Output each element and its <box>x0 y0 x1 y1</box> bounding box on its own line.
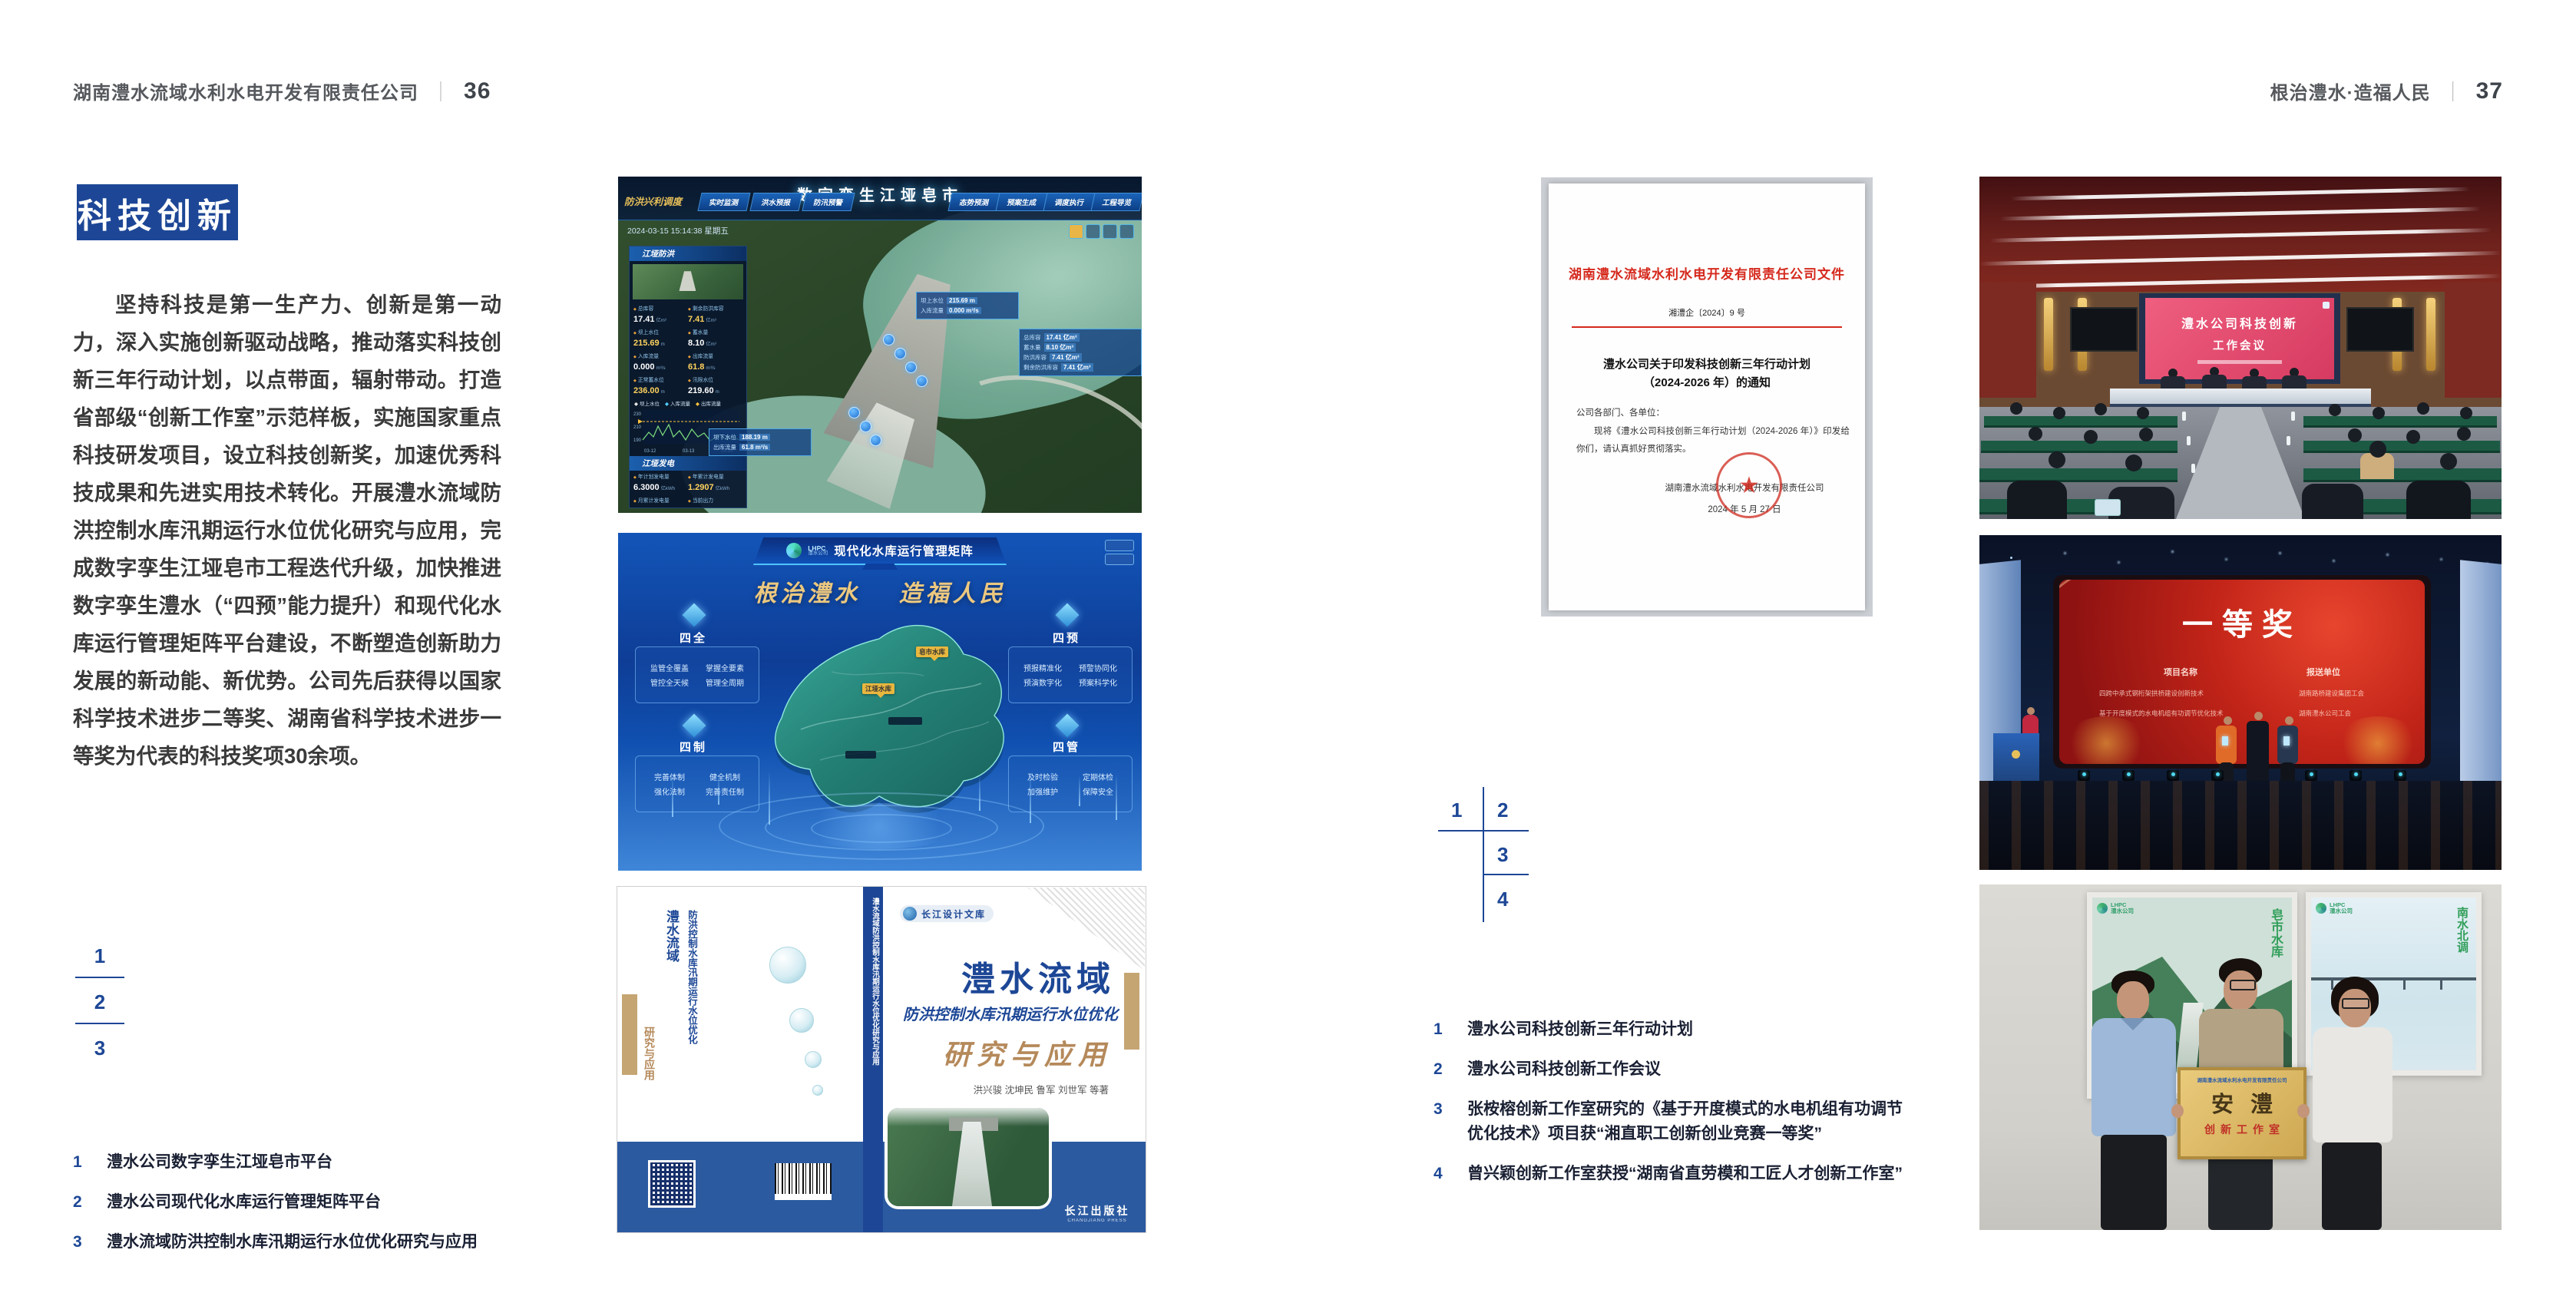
moving-light <box>2167 770 2179 781</box>
panel-item: 预案科学化 <box>1073 676 1123 688</box>
publisher-name-en: CHANGJIANG PRESS <box>1047 1218 1146 1223</box>
award-title: 一等奖 <box>2059 600 2425 644</box>
figure-grid-hline <box>1483 874 1529 875</box>
stat-unit: 亿kWh <box>716 486 730 491</box>
wall-sconce <box>2044 298 2053 371</box>
moving-light <box>2349 770 2362 781</box>
right-page-header: 根治澧水·造福人民 ｜ 37 <box>2270 77 2503 105</box>
stat-unit: m <box>661 342 665 347</box>
tab-situation-forecast[interactable]: 态势预测 <box>947 193 1000 211</box>
series-badge: 长江设计文库 <box>900 905 994 922</box>
foreground-attendee <box>2302 484 2363 519</box>
attendee-head <box>2369 441 2386 458</box>
capacity-info-bubble: 总库容17.41 亿m³ 蓄水量8.10 亿m³ 防洪库容7.41 亿m³ 剩余… <box>1019 329 1142 376</box>
platform-title: 现代化水库运行管理矩阵 <box>834 542 974 559</box>
led-screen: 一等奖 项目名称 报送单位 四跨中承式钢桁架拱桥建设创新技术 湖南路桥建设集团工… <box>2059 580 2425 764</box>
front-title-main: 澧水流域 <box>861 951 1115 1000</box>
figure-innovation-meeting-photo: 澧水公司科技创新 工作会议 <box>1979 177 2502 519</box>
hand <box>2171 1104 2184 1118</box>
water-bottle <box>2191 464 2195 473</box>
company-name: 湖南澧水流域水利水电开发有限责任公司 <box>73 78 418 104</box>
lhpc-logo-icon <box>2316 903 2326 914</box>
dashboard-datetime: 2024-03-15 15:14:38 星期五 <box>627 225 729 236</box>
dam-marker <box>894 348 906 359</box>
hand <box>2297 1104 2310 1118</box>
tab-project-tour[interactable]: 工程导览 <box>1090 193 1142 211</box>
back-title-sub: 防洪控制水库汛期运行水位优化 <box>685 910 699 1140</box>
close-button[interactable] <box>1105 540 1134 551</box>
plaque-subtitle: 创新工作室 <box>2181 1122 2303 1137</box>
legend-item: 坝上水位 <box>634 399 660 407</box>
header-notch <box>862 564 898 570</box>
caption-text: 澧水流域防洪控制水库汛期运行水位优化研究与应用 <box>107 1230 478 1255</box>
light-pillar <box>1079 775 1080 806</box>
plaque-title: 安澧 <box>2181 1086 2303 1119</box>
panel-item: 监管全覆盖 <box>645 662 694 673</box>
front-title-gold: 研究与应用 <box>858 1033 1112 1073</box>
attendee-head <box>2417 402 2429 415</box>
moving-light <box>2122 770 2135 781</box>
map-label-jiangya: 江垭水库 <box>862 683 894 694</box>
attendee-head <box>2125 455 2142 471</box>
caption-text: 澧水公司科技创新工作会议 <box>1467 1057 1661 1082</box>
light-pillar <box>672 775 673 817</box>
screen-logo-icon <box>2323 302 2330 309</box>
attendee-head <box>2457 427 2471 441</box>
figure-index-1: 1 <box>1451 798 1462 822</box>
stage-lights <box>2010 557 2012 559</box>
caption-text: 张桉榕创新工作室研究的《基于开度模式的水电机组有功调节 优化技术》项目获“湘直职… <box>1467 1097 1903 1146</box>
right-page-number: 37 <box>2476 78 2503 104</box>
trophy <box>2283 736 2290 746</box>
figure-index-divider <box>75 977 124 978</box>
caption-number: 4 <box>1433 1162 1452 1186</box>
caption-text: 澧水公司数字孪生江垭皂市平台 <box>107 1150 332 1175</box>
lhpc-logo-icon <box>2097 903 2108 914</box>
front-title-sub: 防洪控制水库汛期运行水位优化 <box>857 1002 1118 1024</box>
poster-logo: LHPC澧水公司 <box>2316 902 2353 914</box>
figure-digital-twin-dashboard: 数字孪生江垭皂市 防洪兴利调度 实时监测 洪水预报 防汛预警 态势预测 预案生成… <box>618 177 1142 513</box>
figure-index-3: 3 <box>75 1037 124 1060</box>
stat-value: 3359.21 <box>633 507 664 508</box>
tab-dispatch-execution[interactable]: 调度执行 <box>1043 193 1096 211</box>
column-unit: 报送单位 <box>2306 666 2340 678</box>
bubble-label: 总库容 <box>1023 333 1041 342</box>
side-display <box>2070 307 2138 352</box>
dam-marker <box>905 362 917 373</box>
water-bottle <box>2287 436 2290 445</box>
column-project: 项目名称 <box>2164 666 2197 678</box>
wall-panel <box>2445 283 2502 398</box>
panel-item: 健全机制 <box>700 771 749 782</box>
left-captions: 1 澧水公司数字孪生江垭皂市平台 2 澧水公司现代化水库运行管理矩阵平台 3 澧… <box>73 1150 564 1270</box>
stat-value: 17.41 <box>633 315 655 324</box>
figure-index-2: 2 <box>75 990 124 1014</box>
attendee-head <box>2084 430 2098 444</box>
figure-matrix-platform: LHPC澧水公司 现代化水库运行管理矩阵 根治澧水 造福人民 皂市水库 江垭水库 <box>618 533 1142 871</box>
desk-row <box>2303 468 2502 482</box>
back-button[interactable] <box>1105 554 1134 565</box>
speaker-torso <box>2282 375 2306 389</box>
flood-stats-grid: 总库容17.41亿m³ 剩余防洪库容7.41亿m³ 坝上水位215.69m 蓄水… <box>630 303 746 399</box>
screen-title-line1: 澧水公司科技创新 <box>2145 313 2334 332</box>
document-header: 湖南澧水流域水利水电开发有限责任公司文件 <box>1549 263 1865 283</box>
panel-item: 预警协同化 <box>1073 662 1123 673</box>
person1-face <box>2117 981 2149 1020</box>
document-body: 现将《澧水公司科技创新三年行动计划（2024-2026 年）》印发给你们，请认真… <box>1576 423 1850 458</box>
bubble-label: 入库流量 <box>921 306 944 315</box>
svg-text:03-13: 03-13 <box>683 449 695 454</box>
attendee-head <box>2406 430 2420 444</box>
person2-glasses <box>2230 980 2256 990</box>
foreground-attendee <box>2406 481 2471 519</box>
person3-glasses <box>2342 998 2369 1009</box>
attendee-head <box>2053 407 2065 419</box>
document-page: 湖南澧水流域水利水电开发有限责任公司文件 湘澧企〔2024〕9 号 澧水公司关于… <box>1549 184 1865 610</box>
company-seal: ★ <box>1716 452 1782 518</box>
dam-gorge-photo <box>888 1108 1049 1206</box>
light-pillar <box>1030 772 1031 823</box>
figure-grid-vline <box>1483 787 1484 922</box>
figure-index-2: 2 <box>1497 798 1508 822</box>
bubble-value: 7.41 亿m³ <box>1050 353 1082 362</box>
desk-row <box>1984 416 2178 428</box>
stat-unit: m³/s <box>706 365 715 371</box>
seal-star-icon: ★ <box>1739 472 1760 499</box>
desk-row <box>1979 468 2178 482</box>
front-accent-bar <box>1124 973 1139 1050</box>
poster-logo: LHPC澧水公司 <box>2097 902 2134 914</box>
brochure-spread: 湖南澧水流域水利水电开发有限责任公司 ｜ 36 根治澧水·造福人民 ｜ 37 科… <box>0 0 2576 1306</box>
caption-row: 1 澧水公司数字孪生江垭皂市平台 <box>73 1150 564 1175</box>
stat-unit: 亿kWh <box>661 486 676 491</box>
trophy <box>2222 736 2228 746</box>
caption-text: 曾兴颖创新工作室获授“湖南省直劳模和工匠人才创新工作室” <box>1467 1162 1903 1186</box>
water-bubble <box>769 947 806 984</box>
water-bubble <box>812 1085 823 1096</box>
caption-number: 1 <box>1433 1017 1452 1042</box>
bubble-value: 188.19 m <box>739 434 770 441</box>
winner-head <box>2285 716 2293 725</box>
panel-icon-siguan <box>1055 713 1079 737</box>
tab-flood-warning[interactable]: 防汛预警 <box>802 193 855 211</box>
dam-marker <box>916 375 928 387</box>
stat-value: 61.8 <box>688 362 704 372</box>
user-icon[interactable] <box>1069 224 1083 239</box>
figure-book-cover: 澧水流域 防洪控制水库汛期运行水位优化 研究与应用 澧水流域防洪控制水库汛期运行… <box>617 886 1146 1233</box>
layers-icon[interactable] <box>1086 224 1100 239</box>
bubble-value: 215.69 m <box>947 297 977 304</box>
tab-plan-generation[interactable]: 预案生成 <box>995 193 1048 211</box>
panel-item: 完善体制 <box>645 771 694 782</box>
award-row-project: 基于开度模式的水电机组有功调节优化技术 <box>2099 709 2224 718</box>
award-row-project: 四跨中承式钢桁架拱桥建设创新技术 <box>2099 689 2204 698</box>
svg-text:190: 190 <box>633 438 642 443</box>
panel-item: 管控全天候 <box>645 676 694 688</box>
caption-text-line1: 张桉榕创新工作室研究的《基于开度模式的水电机组有功调节 <box>1467 1100 1903 1118</box>
bubble-label: 蓄水量 <box>1023 343 1041 352</box>
lhpc-logo-icon <box>786 543 802 558</box>
stat-label: 年计划发电量 <box>633 472 688 480</box>
attendee-head <box>2139 428 2153 441</box>
figure-grid-hline <box>1438 830 1529 832</box>
studio-plaque: 湖南澧水流域水利水电开发有限责任公司 安澧 创新工作室 <box>2178 1067 2306 1159</box>
presenter-suit <box>2247 721 2269 785</box>
caption-number: 3 <box>1433 1097 1452 1146</box>
caption-row: 4 曾兴颖创新工作室获授“湖南省直劳模和工匠人才创新工作室” <box>1433 1162 1940 1186</box>
person2-face <box>2224 970 2257 1010</box>
svg-text:210: 210 <box>633 425 642 430</box>
attendee-head <box>2460 407 2472 419</box>
meeting-screen: 澧水公司科技创新 工作会议 <box>2145 298 2334 379</box>
panel-header: 江垭发电 <box>630 456 746 471</box>
header-separator: ｜ <box>2443 77 2464 105</box>
caption-text: 澧水公司现代化水库运行管理矩阵平台 <box>107 1190 381 1215</box>
figure-index-3: 3 <box>1497 843 1508 867</box>
figure-index-divider <box>75 1023 124 1024</box>
alert-icon[interactable] <box>1119 224 1134 239</box>
bubble-value: 61.8 m³/s <box>739 444 770 451</box>
stat-value: 6.3000 <box>633 483 660 492</box>
upstream-info-bubble: 坝上水位215.69 m 入库流量0.000 m³/s <box>916 292 1019 319</box>
award-row-unit: 湖南路桥建设集团工会 <box>2299 689 2364 698</box>
dashboard-mode-label: 防洪兴利调度 <box>624 193 682 208</box>
panel-title: 四管 <box>1008 739 1125 755</box>
authors-line: 洪兴骏 沈坤民 鲁军 刘世军 等著 <box>863 1082 1109 1096</box>
platform-header: LHPC澧水公司 现代化水库运行管理矩阵 <box>753 537 1007 565</box>
stat-unit: m³/s <box>656 365 666 371</box>
bubble-value: 8.10 亿m³ <box>1044 343 1076 352</box>
water-bottle <box>2182 412 2186 421</box>
downstream-info-bubble: 坝下水位188.19 m 出库流量61.8 m³/s <box>709 428 812 456</box>
poster-calligraphy: 南水北调 <box>2454 907 2470 953</box>
panel-icon-sizhi <box>682 713 706 737</box>
publisher-name: 长江出版社 <box>1047 1203 1146 1218</box>
publisher-block: 长江出版社 CHANGJIANG PRESS <box>1047 1203 1146 1223</box>
light-pillar <box>979 775 980 811</box>
light-pillar <box>769 771 770 825</box>
moving-light <box>2078 770 2090 781</box>
stat-value: 236.00 <box>633 386 660 395</box>
panel-siguan: 及时检验定期体检 加强维护保障安全 <box>1008 755 1133 812</box>
panel-item: 预报精准化 <box>1018 662 1067 673</box>
panel-item: 完善责任制 <box>700 785 749 797</box>
speaker-torso <box>2202 375 2227 388</box>
stat-value: 7.41 <box>688 315 704 324</box>
moving-light <box>2394 770 2406 781</box>
caption-number: 3 <box>73 1230 91 1255</box>
person3-pants <box>2322 1142 2382 1230</box>
light-pillar <box>1116 774 1117 820</box>
attendee-head <box>2329 404 2341 416</box>
attendee-head <box>2373 407 2385 419</box>
left-page-number: 36 <box>464 78 491 104</box>
tab-flood-forecast[interactable]: 洪水预报 <box>749 193 802 211</box>
poster-calligraphy: 皂市水库 <box>2266 908 2284 957</box>
wall-panel <box>1979 283 2036 398</box>
left-page-header: 湖南澧水流域水利水电开发有限责任公司 ｜ 36 <box>73 77 491 105</box>
stat-unit: 亿m³ <box>656 318 666 323</box>
stat-unit: m <box>716 389 719 395</box>
screen-subtitle-bar <box>2197 360 2282 364</box>
tissue-box <box>2095 499 2121 516</box>
bubble-label: 出库流量 <box>713 443 736 451</box>
power-stats-grid: 年计划发电量6.3000亿kWh 年累计发电量1.2907亿kWh 月累计发电量… <box>630 471 746 508</box>
stat-label: 汛限水位 <box>688 375 742 383</box>
stat-label: 出库流量 <box>688 352 742 359</box>
light-pillar <box>718 775 719 805</box>
stat-label: 蓄水量 <box>688 328 742 336</box>
foreground-attendee <box>2007 481 2067 519</box>
attendee-head <box>2010 402 2022 415</box>
logo-text: LHPC澧水公司 <box>2330 902 2353 914</box>
figure-studio-group-photo: LHPC澧水公司 皂市水库 LHPC澧水公司 南水北调 <box>1979 884 2502 1230</box>
stat-value: 0.00 <box>688 507 704 508</box>
qr-code <box>648 1160 696 1208</box>
attendee-head <box>2348 428 2362 442</box>
plaque-header: 湖南澧水流域水利水电开发有限责任公司 <box>2181 1076 2303 1083</box>
person3-tee <box>2313 1027 2392 1142</box>
section-title: 科技创新 <box>77 184 238 240</box>
document-title-line1: 澧水公司关于印发科技创新三年行动计划 <box>1549 355 1865 372</box>
bubble-value: 0.000 m³/s <box>947 307 981 314</box>
ripple-glow <box>795 803 964 849</box>
legend-item: 出库流量 <box>696 399 721 407</box>
attendee-head <box>2137 407 2149 419</box>
document-title-line2: （2024-2026 年）的通知 <box>1549 374 1865 390</box>
caption-number: 1 <box>73 1150 91 1175</box>
panel-title: 四制 <box>635 739 752 755</box>
panel-item: 及时检验 <box>1018 771 1067 782</box>
stat-label: 入库流量 <box>633 352 688 359</box>
caption-row: 2 澧水公司科技创新工作会议 <box>1433 1057 1940 1082</box>
stat-label: 年累计发电量 <box>688 472 742 480</box>
attendee-head <box>2095 403 2107 415</box>
stat-label: 剩余防洪库容 <box>688 304 742 312</box>
svg-text:230: 230 <box>633 412 642 417</box>
stat-unit: m <box>661 389 665 395</box>
desk-row <box>1981 441 2178 453</box>
dam-marker <box>883 334 894 346</box>
bubble-label: 坝上水位 <box>921 296 944 305</box>
stat-value: 215.69 <box>633 339 660 348</box>
stat-unit: 亿m³ <box>706 318 716 323</box>
stat-label: 总库容 <box>633 304 688 312</box>
person1-polo <box>2092 1018 2176 1136</box>
wall-sconce <box>2426 298 2435 371</box>
flood-control-panel: 江垭防洪 总库容17.41亿m³ 剩余防洪库容7.41亿m³ 坝上水位215.6… <box>629 246 747 508</box>
locate-icon[interactable] <box>1103 224 1117 239</box>
stat-value: 8.10 <box>688 339 704 348</box>
side-display <box>2346 307 2414 352</box>
attendee-head <box>2440 453 2457 470</box>
winner-head <box>2224 716 2232 725</box>
stat-value: 219.60 <box>688 386 714 395</box>
caption-number: 2 <box>73 1190 91 1215</box>
right-captions: 1 澧水公司科技创新三年行动计划 2 澧水公司科技创新工作会议 3 张桉榕创新工… <box>1433 1017 1940 1202</box>
panel-item: 预演数字化 <box>1018 676 1067 688</box>
water-bottle <box>2187 436 2191 445</box>
map-label-small <box>888 717 922 725</box>
caption-row: 3 张桉榕创新工作室研究的《基于开度模式的水电机组有功调节 优化技术》项目获“湘… <box>1433 1097 1940 1146</box>
attendee-head <box>2049 451 2065 468</box>
moving-light <box>2211 770 2224 781</box>
document-number: 湘澧企〔2024〕9 号 <box>1549 306 1865 319</box>
attendee-head <box>2029 427 2042 441</box>
bubble-value: 7.41 亿m³ <box>1061 363 1093 372</box>
panel-item: 强化法制 <box>645 785 694 797</box>
water-bubble <box>789 1008 814 1033</box>
panel-siyu: 预报精准化预警协同化 预演数字化预案科学化 <box>1008 646 1133 703</box>
award-row-unit: 湖南澧水公司工会 <box>2299 709 2351 718</box>
logo-text: LHPC澧水公司 <box>2111 902 2134 914</box>
stage-floor <box>1979 781 2502 870</box>
dam-marker <box>848 407 860 418</box>
figure-index-1: 1 <box>75 944 124 968</box>
dam-aerial-thumbnail <box>633 264 743 299</box>
chart-legend: 坝上水位 入库流量 出库流量 <box>630 399 746 407</box>
figure-award-ceremony-photo: 一等奖 项目名称 报送单位 四跨中承式钢桁架拱桥建设创新技术 湖南路桥建设集团工… <box>1979 535 2502 870</box>
stat-label: 正常蓄水位 <box>633 375 688 383</box>
moving-light <box>2305 770 2317 781</box>
caption-text-line2: 优化技术》项目获“湘直职工创新创业竞赛一等奖” <box>1467 1125 1822 1142</box>
caption-number: 2 <box>1433 1057 1452 1082</box>
slogan: 根治澧水·造福人民 <box>2270 78 2431 104</box>
host-head <box>2027 707 2035 715</box>
body-paragraph: 坚持科技是第一生产力、创新是第一动力，深入实施创新驱动战略，推动落实科技创新三年… <box>73 286 501 775</box>
caption-text: 澧水公司科技创新三年行动计划 <box>1467 1017 1693 1042</box>
water-bottle <box>2291 412 2295 421</box>
stat-label: 当前出力 <box>688 496 742 504</box>
caption-row: 2 澧水公司现代化水库运行管理矩阵平台 <box>73 1190 564 1215</box>
stat-label: 月累计发电量 <box>633 496 688 504</box>
red-rule <box>1572 326 1842 328</box>
bubble-label: 剩余防洪库容 <box>1023 363 1058 372</box>
stat-label: 坝上水位 <box>633 328 688 336</box>
panel-item: 加强维护 <box>1018 785 1067 797</box>
bubble-label: 坝下水位 <box>713 433 736 441</box>
screen-title-line2: 工作会议 <box>2145 337 2334 353</box>
panel-title: 四全 <box>635 630 752 646</box>
bubble-label: 防洪库容 <box>1023 353 1047 362</box>
water-bubble <box>805 1051 822 1068</box>
figure-official-document: 湖南澧水流域水利水电开发有限责任公司文件 湘澧企〔2024〕9 号 澧水公司关于… <box>1541 177 1873 617</box>
map-label-zaoshi: 皂市水库 <box>916 646 948 657</box>
logo-text-cn: 澧水公司 <box>808 551 828 557</box>
caption-row: 1 澧水公司科技创新三年行动计划 <box>1433 1017 1940 1042</box>
panel-item: 掌握全要素 <box>700 662 749 673</box>
panel-title: 四预 <box>1008 630 1125 646</box>
podium-emblem <box>2012 750 2020 759</box>
dam-marker <box>860 421 871 432</box>
panel-sizhi: 完善体制健全机制 强化法制完善责任制 <box>635 755 759 812</box>
back-title-gold: 研究与应用 <box>642 1027 657 1080</box>
header-separator: ｜ <box>431 77 451 105</box>
document-salutation: 公司各部门、各单位： <box>1576 405 1665 422</box>
series-name: 长江设计文库 <box>921 908 986 921</box>
tab-realtime-monitor[interactable]: 实时监测 <box>697 193 750 211</box>
barcode <box>775 1163 832 1200</box>
back-accent-bar <box>622 994 637 1075</box>
panel-item: 管理全周期 <box>700 676 749 688</box>
stat-value: 1.2907 <box>688 483 714 492</box>
figure-index-4: 4 <box>1497 888 1508 911</box>
panel-siquan: 监管全覆盖掌握全要素 管控全天候管理全周期 <box>635 646 759 703</box>
back-title-main: 澧水流域 <box>662 910 681 962</box>
map-label-small <box>845 751 876 759</box>
stat-value: 0.000 <box>633 362 655 372</box>
person1-pants <box>2101 1135 2167 1230</box>
